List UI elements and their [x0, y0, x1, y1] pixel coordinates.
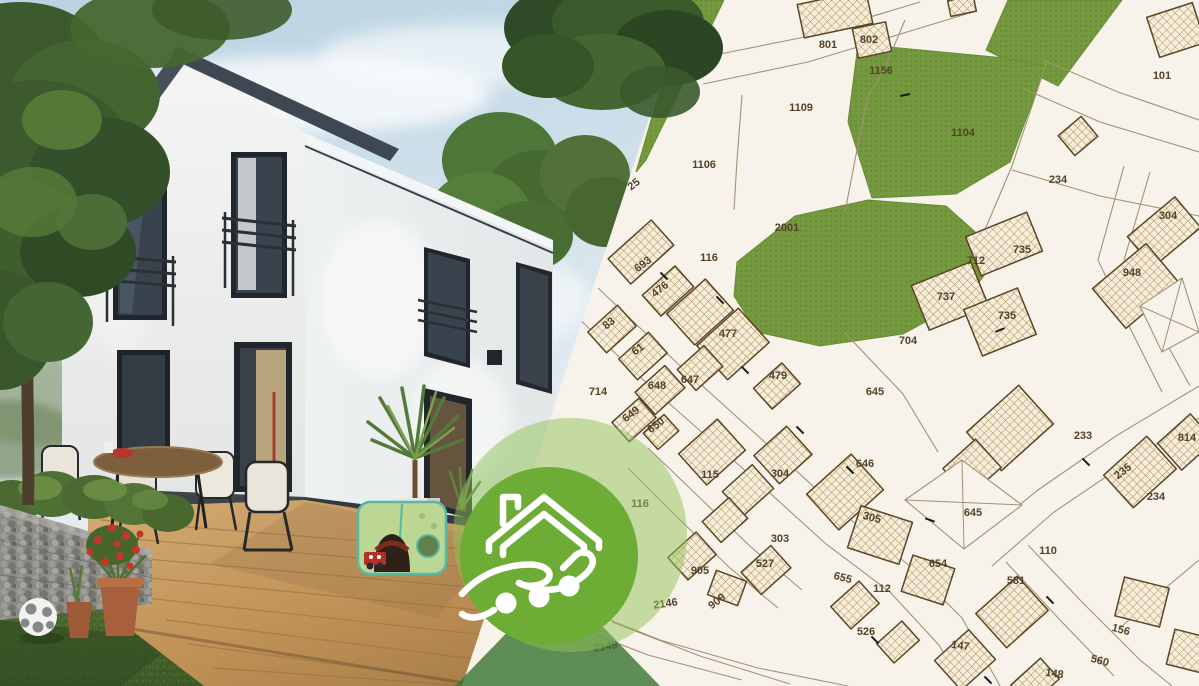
- parcel-label: 112: [873, 583, 891, 595]
- parcel-label: 581: [1007, 575, 1025, 587]
- parcel-label: 712: [967, 255, 985, 267]
- parcel-label: 147: [950, 639, 970, 653]
- parcel-label: 1106: [692, 159, 716, 171]
- parcel-label: 1109: [789, 102, 813, 114]
- composite-hero-image: 8018021156101110911041106252343042001735…: [0, 0, 1199, 686]
- tent-side-hole: [417, 535, 439, 557]
- parcel-label: 304: [1159, 210, 1178, 222]
- parcel-label: 101: [1153, 70, 1171, 82]
- parcel-label: 737: [937, 291, 955, 303]
- parcel-label: 526: [857, 626, 875, 638]
- parcel-label: 233: [1074, 430, 1092, 442]
- parcel-label: 2001: [775, 222, 799, 234]
- parcel-label: 1156: [869, 65, 893, 77]
- parcel-label: 479: [769, 370, 787, 382]
- parcel-label: 905: [691, 565, 709, 577]
- parcel-label: 948: [1123, 267, 1141, 279]
- scene-svg: 8018021156101110911041106252343042001735…: [0, 0, 1199, 686]
- parcel-label: 477: [719, 328, 737, 340]
- parcel-label: 801: [819, 39, 837, 51]
- cup: [104, 442, 113, 453]
- parcel-label: 116: [700, 252, 718, 264]
- parcel-label: 645: [866, 386, 884, 398]
- parcel-label: 645: [964, 507, 982, 519]
- parcel-label: 304: [771, 468, 790, 480]
- window-side-upper: [418, 247, 477, 368]
- window-upper-mid: [222, 152, 296, 298]
- curtain: [238, 158, 256, 290]
- parcel-label: 110: [1039, 545, 1057, 557]
- wall-lamp: [487, 350, 502, 365]
- parcel-label: 654: [929, 558, 948, 570]
- parcel-label: 148: [1044, 667, 1064, 681]
- parcel-label: 714: [589, 386, 608, 398]
- parcel-label: 648: [648, 380, 666, 392]
- parcel-label: 735: [998, 310, 1016, 322]
- window-side-far: [516, 262, 552, 394]
- red-bowl: [111, 448, 133, 458]
- parcel-label: 303: [771, 533, 789, 545]
- parcel-label: 1104: [951, 127, 976, 139]
- parcel-label: 527: [756, 558, 774, 570]
- parcel-label: 115: [701, 469, 719, 481]
- parcel-label: 704: [899, 335, 918, 347]
- play-tent: [358, 502, 446, 574]
- parcel-label: 735: [1013, 244, 1031, 256]
- badge-circle: [460, 467, 638, 645]
- parcel-label: 646: [856, 458, 874, 470]
- parcel-label: 647: [681, 374, 699, 386]
- parcel-label: 234: [1147, 491, 1166, 503]
- parcel-label: 802: [860, 34, 878, 46]
- parcel-label: 234: [1049, 174, 1068, 186]
- parcel-label: 814: [1178, 432, 1197, 444]
